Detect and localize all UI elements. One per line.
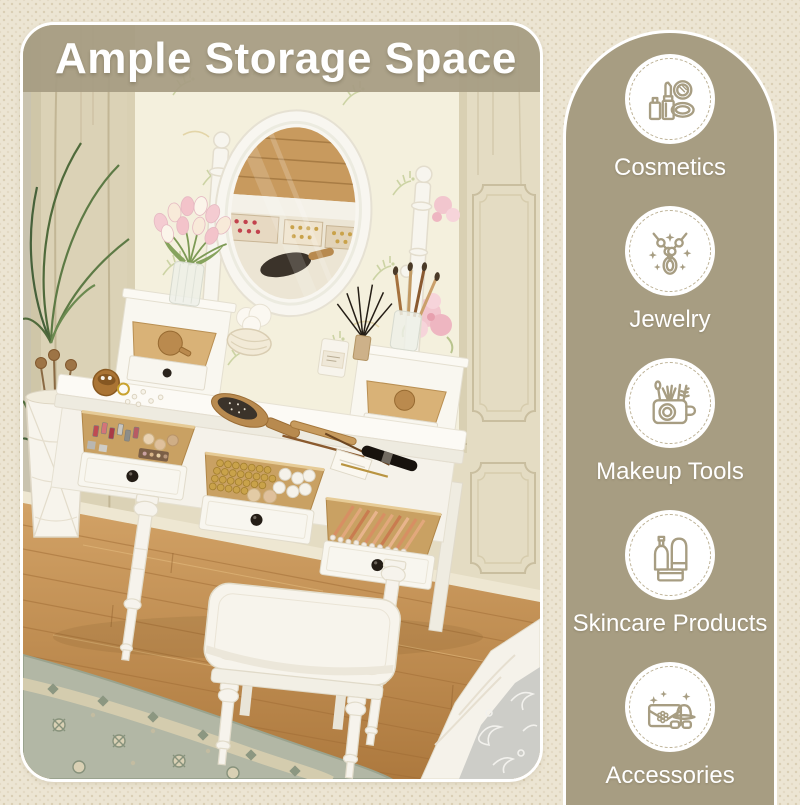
accessories-icon	[625, 662, 715, 752]
banner-title: Ample Storage Space	[55, 34, 517, 84]
makeup-tools-icon	[625, 358, 715, 448]
bedroom-scene	[23, 25, 540, 779]
feature-label: Makeup Tools	[596, 456, 744, 487]
feature-cosmetics: Cosmetics	[614, 54, 726, 183]
feature-label: Accessories	[605, 760, 734, 791]
feature-makeup-tools: Makeup Tools	[596, 358, 744, 487]
feature-skincare: Skincare Products	[573, 510, 768, 639]
drawer-right-open	[316, 498, 441, 589]
mini-drawer-left	[110, 288, 236, 399]
drawer-middle-open	[195, 453, 324, 545]
feature-label: Skincare Products	[573, 608, 768, 639]
drawer-left-open	[72, 411, 195, 500]
jewelry-icon	[625, 206, 715, 296]
feature-label: Jewelry	[629, 304, 710, 335]
features-panel: Cosmetics Jewelry	[563, 30, 777, 805]
product-photo: Ample Storage Space	[20, 22, 543, 782]
feature-accessories: Accessories	[605, 662, 734, 791]
feature-label: Cosmetics	[614, 152, 726, 183]
skincare-products-icon	[625, 510, 715, 600]
banner: Ample Storage Space	[23, 25, 540, 92]
cosmetics-icon	[625, 54, 715, 144]
feature-jewelry: Jewelry	[625, 206, 715, 335]
candle	[317, 338, 349, 377]
